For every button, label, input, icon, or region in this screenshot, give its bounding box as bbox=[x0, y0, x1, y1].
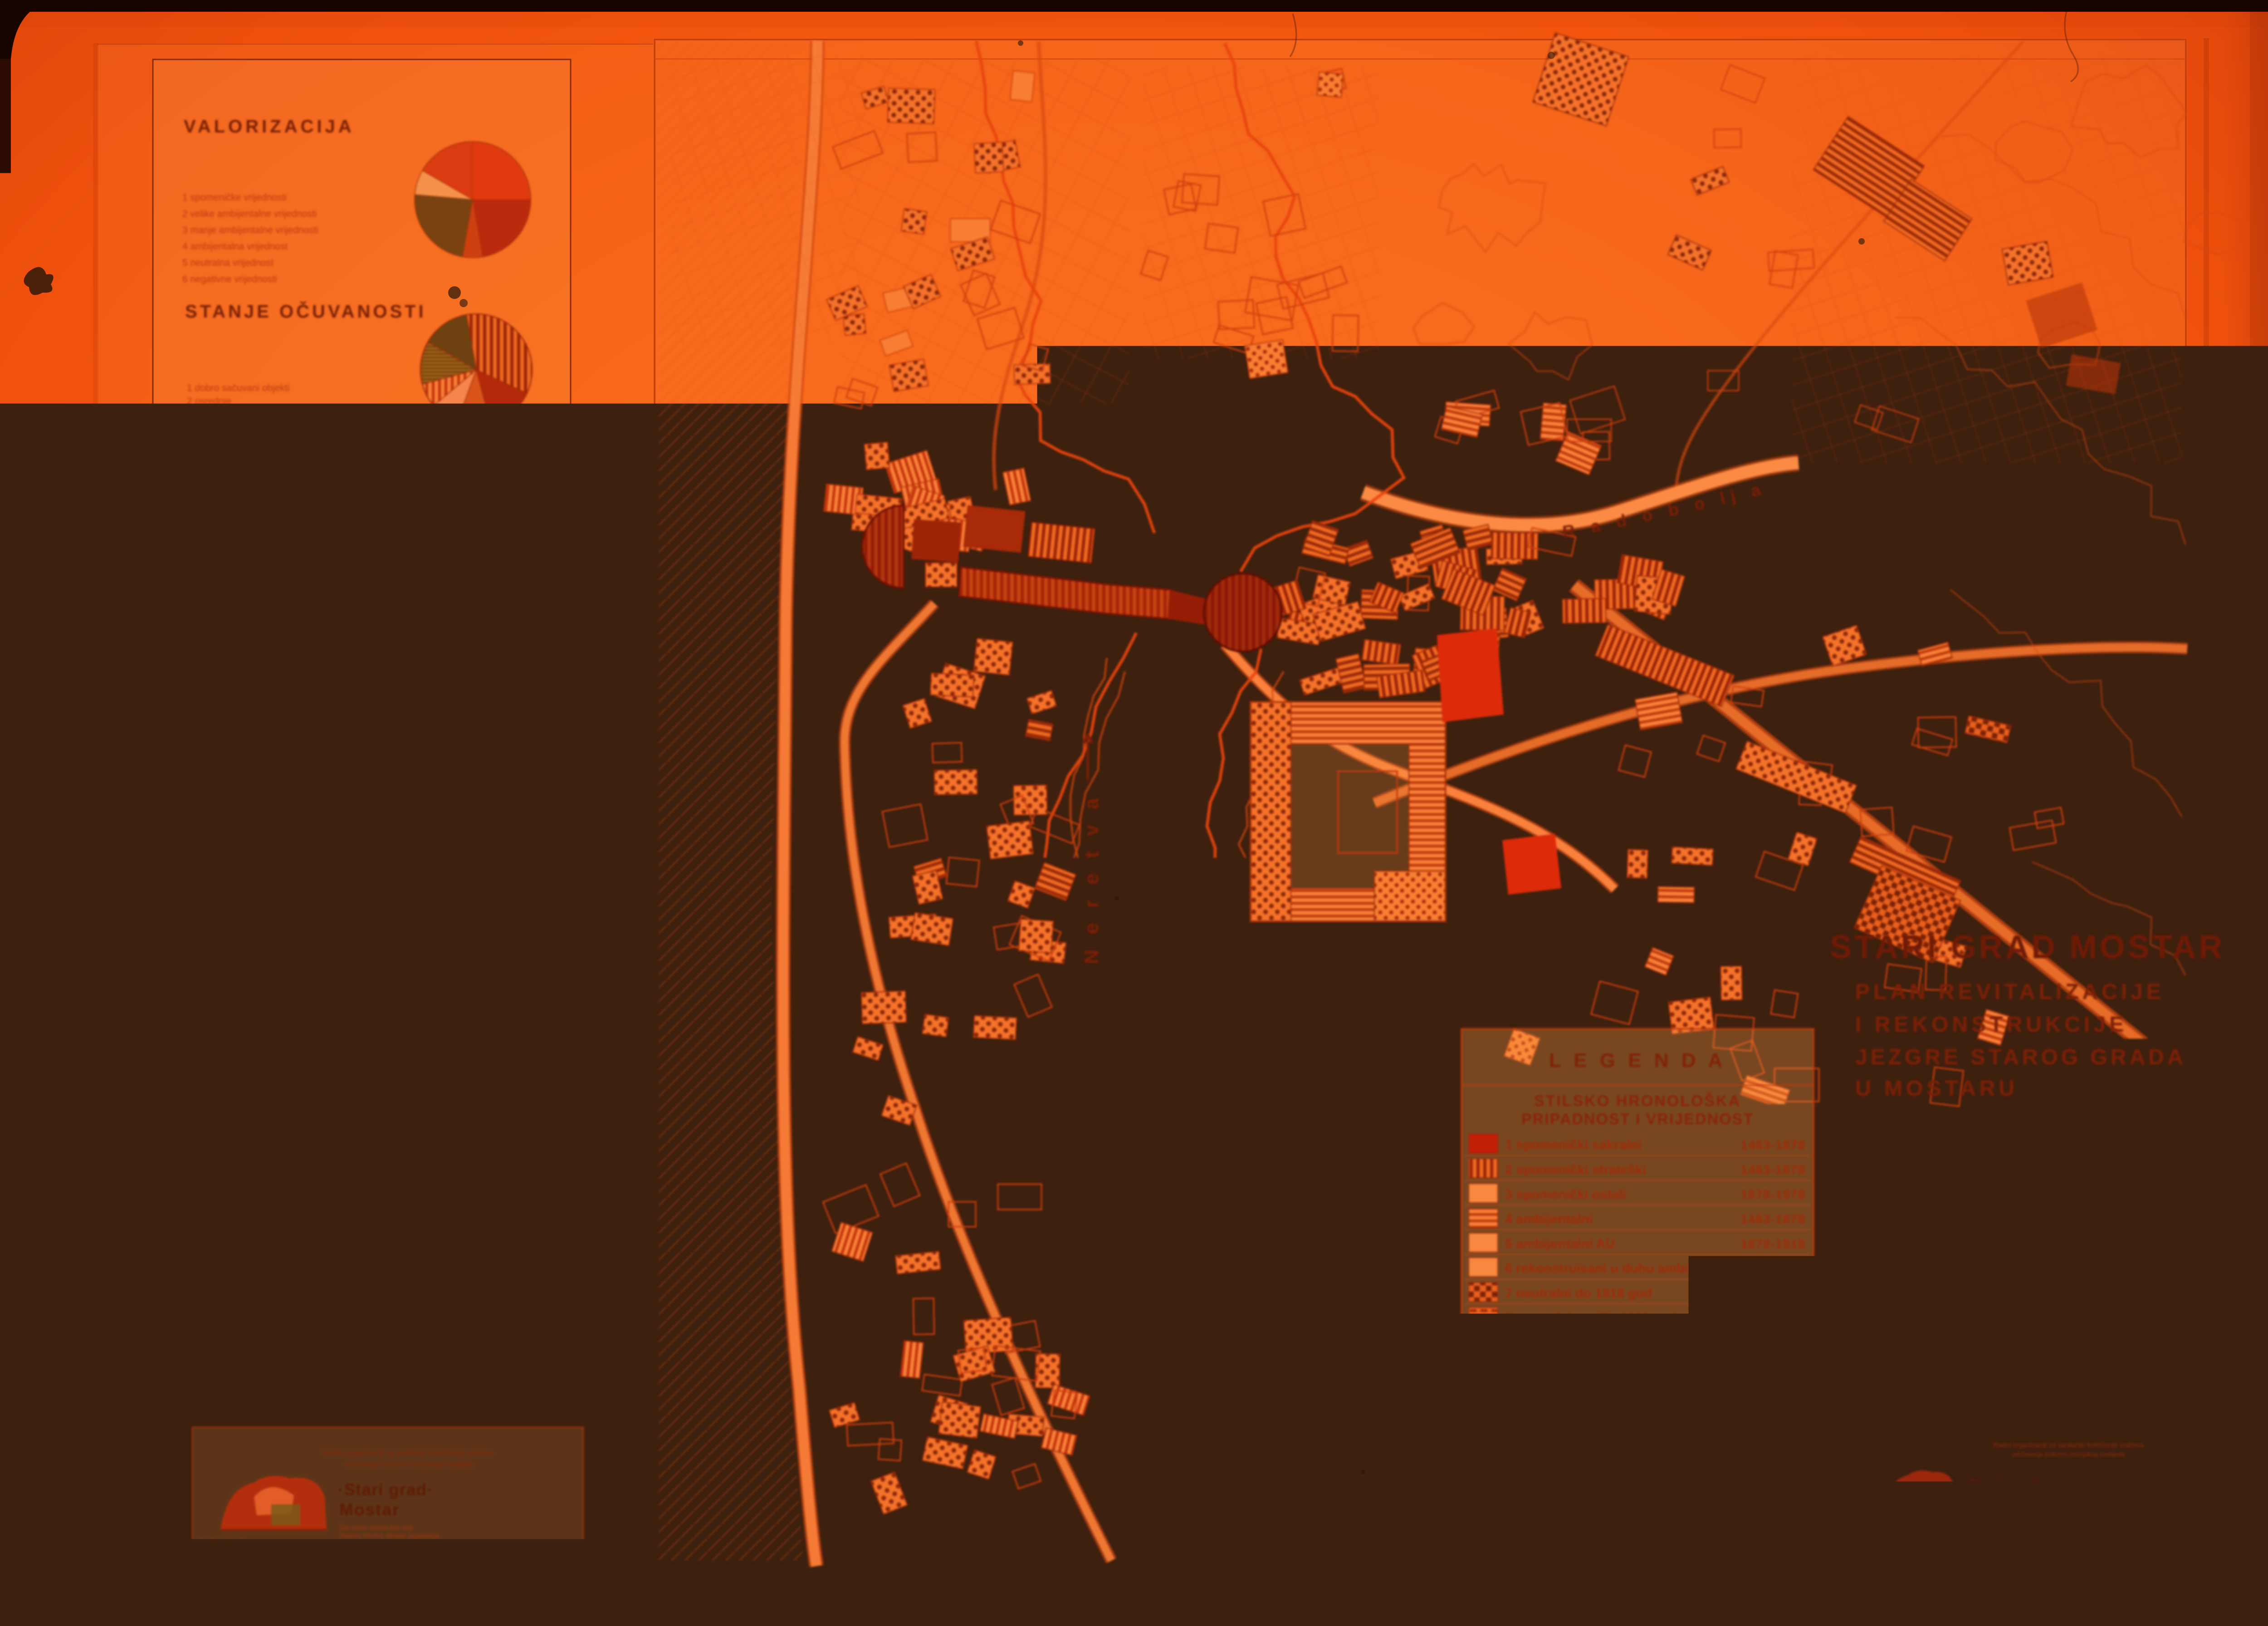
svg-text:STARI GRAD MOSTAR: STARI GRAD MOSTAR bbox=[1830, 929, 2225, 965]
svg-text:5 ambijentalni AU 1878-: 5 ambijentalni AU 1878-1918 bbox=[188, 875, 305, 885]
svg-text:Kako organizaciju za upravljan: Kako organizaciju za upravljanje, korišć… bbox=[191, 715, 557, 723]
svg-text:7 AB skelet sa ispunom od: 7 AB skelet sa ispunom od kamena bbox=[188, 1107, 330, 1117]
svg-text:2 spomenički strateški 1463-1: 2 spomenički strateški 1463-1878 bbox=[188, 840, 323, 850]
svg-text:Mostar: Mostar bbox=[339, 1500, 400, 1519]
svg-text:12 prazan plac: 12 prazan plac bbox=[1505, 1410, 1596, 1425]
svg-text:STILSKO HRONOLOŠKA: STILSKO HRONOLOŠKA bbox=[1534, 1092, 1741, 1110]
svg-text:INVESTITOR: INVESTITOR bbox=[1878, 1212, 1953, 1225]
svg-text:ALIĆ SULEJMAN dipl ing: ALIĆ SULEJMAN dipl ing bbox=[1983, 1418, 2065, 1426]
svg-text:LOKALITET: LOKALITET bbox=[1878, 1254, 1948, 1268]
svg-text:KRILIĆ ZIJAD dipl ing: KRILIĆ ZIJAD dipl ing bbox=[1983, 1347, 2049, 1355]
svg-text:9 AB: 9 AB bbox=[193, 1288, 212, 1298]
svg-text:·Stari grad·: ·Stari grad· bbox=[1964, 1476, 2044, 1492]
svg-text:4 trošno: 4 trošno bbox=[187, 422, 221, 433]
svg-text:Žiro račun 10600-601: Žiro račun 10600-601-433 bbox=[339, 1524, 413, 1531]
svg-text:12 prazan plac: 12 prazan plac bbox=[188, 958, 248, 968]
svg-text:SIZ ZA PROSTORNO: SIZ ZA PROSTORNO bbox=[1983, 1213, 2058, 1221]
svg-text:8 neutralni poslije 1918: 8 neutralni poslije 1918 bbox=[188, 911, 282, 921]
svg-text:10 metalno: 10 metalno bbox=[193, 1302, 238, 1312]
svg-text:KROV I POKROV: KROV I POKROV bbox=[188, 466, 370, 486]
svg-text:PRIPADNOST I VRIJEDNOST: PRIPADNOST I VRIJEDNOST bbox=[1521, 1111, 1754, 1128]
svg-text:1 dobro sačuvani objekti: 1 dobro sačuvani objekti bbox=[187, 383, 289, 393]
svg-text:VALORIZACIJA: VALORIZACIJA bbox=[184, 117, 355, 137]
svg-text:KARTA 1:500: KARTA 1:500 bbox=[2027, 1129, 2181, 1152]
svg-text:Mostar: Mostar bbox=[1965, 1494, 2017, 1509]
svg-text:2 crijep: 2 crijep bbox=[191, 534, 220, 544]
svg-text:NASLJEĐA ANALIZA: NASLJEĐA ANALIZA bbox=[1983, 1300, 2048, 1308]
svg-text:3 zamijeniti kamen materijal: 3 zamijeniti kamen materijal bbox=[188, 1050, 300, 1060]
svg-text:8 dijelom srušen: 8 dijelom srušen bbox=[191, 618, 257, 628]
svg-text:ARHITEKTONSKI ZAVOD: ARHITEKTONSKI ZAVOD bbox=[1983, 1283, 2063, 1290]
svg-text:Kako organizaciju za upravljan: Kako organizaciju za upravljanje, korišć… bbox=[195, 1377, 535, 1385]
svg-text:1878-1978: 1878-1978 bbox=[1740, 1187, 1805, 1201]
svg-text:10 ruševine ambijentalnih o: 10 ruševine ambijentalnih objekata bbox=[188, 934, 328, 944]
svg-text:2 zamijeniti kamen žbukom: 2 zamijeniti kamen žbukom bbox=[188, 1036, 298, 1046]
svg-text:11 ruševine ne postoje istor p: 11 ruševine ne postoje istor podaci bbox=[1505, 1385, 1724, 1400]
svg-text:5 ravni krov: 5 ravni krov bbox=[191, 576, 237, 586]
svg-text:STILSKO HRONOLOŠKA: STILSKO HRONOLOŠKA bbox=[195, 780, 432, 800]
svg-text:MEĐU-SPRAT, STEPENIŠTE: MEĐU-SPRAT, STEPENIŠTE bbox=[206, 1141, 465, 1161]
svg-text:2 spomenički strateški: 2 spomenički strateški bbox=[1505, 1163, 1646, 1177]
svg-text:SARADNICI: SARADNICI bbox=[1878, 1344, 1942, 1357]
svg-text:5 neutralna vrijednost: 5 neutralna vrijednost bbox=[182, 258, 274, 268]
svg-text:ČERIĆ ELŠA: ČERIĆ ELŠA bbox=[1983, 1364, 2024, 1372]
svg-text:OVLAŠĆENI: OVLAŠĆENI bbox=[1878, 1319, 1945, 1332]
svg-text:1 spomenički sakralni 1463-1: 1 spomenički sakralni 1463-1878 bbox=[188, 828, 321, 838]
svg-text:6 rekonstruisani u duhu ambije: 6 rekonstruisani u duhu ambijenta bbox=[1505, 1262, 1720, 1276]
svg-text:8 neutralni poslije 1918 god: 8 neutralni poslije 1918 god bbox=[1505, 1311, 1677, 1326]
svg-text:SEPTEMBAR 1978: SEPTEMBAR 1978 bbox=[2114, 1513, 2210, 1523]
svg-text:9 recentni objekti: 9 recentni objekti bbox=[1505, 1336, 1613, 1350]
svg-text:3 spomenički ostali 1878-: 3 spomenički ostali 1878-1978 bbox=[188, 852, 311, 862]
svg-text:6 kupa kanalica: 6 kupa kanalica bbox=[191, 590, 254, 600]
svg-text:7 neutralni do 1918: 7 neutralni do 1918 bbox=[188, 899, 266, 909]
svg-text:1 pozitivne obrade kamen: 1 pozitivne obrade kamen bbox=[188, 1022, 292, 1032]
svg-text:Neretva: Neretva bbox=[1080, 783, 1103, 964]
svg-text:održavanje kulturno-istorijsko: održavanje kulturno-istorijskog naslijeđ… bbox=[344, 1460, 473, 1468]
svg-text:1 spomenički sakralni: 1 spomenički sakralni bbox=[1505, 1138, 1642, 1152]
svg-text:11 ruševine ne postoje isto: 11 ruševine ne postoje istor podaci bbox=[188, 946, 328, 956]
svg-text:Jugoslavija: Jugoslavija bbox=[1965, 1513, 1997, 1520]
svg-text:ulica Prve maja 18: ulica Prve maja 18 bbox=[196, 1537, 244, 1544]
svg-text:STARI GRAD: STARI GRAD bbox=[1983, 1255, 2027, 1263]
svg-text:PROJEKTANT-: PROJEKTANT- bbox=[1878, 1332, 1959, 1344]
svg-text:održavanje kulturno-istorijsko: održavanje kulturno-istorijskog naslijeđ… bbox=[2012, 1450, 2125, 1458]
svg-text:4 AB serklaži i drvene gre: 4 AB serklaži i drvene grede bbox=[193, 1223, 306, 1233]
svg-text:6 negativne vrijednosti: 6 negativne vrijednosti bbox=[182, 274, 277, 284]
svg-text:KULTURNO ISTOR: KULTURNO ISTOR bbox=[1983, 1291, 2043, 1299]
svg-text:3 manje ambijentalne vrijedn: 3 manje ambijentalne vrijednosti bbox=[182, 225, 318, 235]
svg-text:9 recentni objekti: 9 recentni objekti bbox=[188, 922, 257, 932]
svg-text:ZIDOVI I FASADE: ZIDOVI I FASADE bbox=[200, 974, 375, 993]
svg-text:JEZGRE STAROG GRADA: JEZGRE STAROG GRADA bbox=[1855, 1045, 2186, 1069]
svg-text:2 drvena i svodovi: 2 drvena i svodovi bbox=[193, 1196, 266, 1206]
svg-text:PLAN REVITALIZACIJE: PLAN REVITALIZACIJE bbox=[1855, 980, 2165, 1004]
svg-text:6 betonski zidovi: 6 betonski zidovi bbox=[188, 1092, 255, 1102]
svg-text:Radni organizaciji za sanita: Radni organizaciji za sanitarijo korišče… bbox=[323, 1449, 494, 1457]
svg-text:11 kombinovano: 11 kombinovano bbox=[193, 1315, 259, 1325]
svg-text:8 drvene: 8 drvene bbox=[193, 1275, 228, 1285]
svg-text:2 osrednje: 2 osrednje bbox=[187, 396, 231, 406]
svg-text:Radni organizaciji za sanita: Radni organizaciji za sanitarijo korišče… bbox=[1993, 1441, 2144, 1449]
svg-text:UREĐENJE: UREĐENJE bbox=[1983, 1223, 2025, 1231]
svg-text:PROJEKAT: PROJEKAT bbox=[1878, 1281, 1945, 1295]
svg-text:1 svod: 1 svod bbox=[193, 1183, 220, 1193]
svg-text:5 AB ploča: 5 AB ploča bbox=[193, 1236, 237, 1246]
svg-text:I REKONSTRUKCIJE: I REKONSTRUKCIJE bbox=[1855, 1013, 2127, 1037]
svg-text:1 spomeničke vrijednosti: 1 spomeničke vrijednosti bbox=[182, 192, 287, 203]
svg-text:10 ruševine ambijentalni objek: 10 ruševine ambijentalni objekata bbox=[1505, 1361, 1715, 1375]
svg-text:STILSKO HRONOLOŠKA PRIPA-: STILSKO HRONOLOŠKA PRIPA- bbox=[1832, 1161, 2134, 1182]
svg-text:1878-1918: 1878-1918 bbox=[1740, 1237, 1805, 1251]
svg-text:JUKIĆ ANKICA i drugi: JUKIĆ ANKICA i drugi bbox=[1983, 1373, 2050, 1381]
svg-text:LAKIŠIĆ ALIJA: LAKIŠIĆ ALIJA bbox=[1983, 1356, 2029, 1363]
svg-text:3 drvena građa: 3 drvena građa bbox=[193, 1210, 254, 1219]
svg-text:DNOST I VRIJEDNOST: DNOST I VRIJEDNOST bbox=[1869, 1182, 2088, 1202]
svg-text:1 dobar krov: 1 dobar krov bbox=[191, 519, 241, 529]
svg-text:DIREKTOR: DIREKTOR bbox=[1878, 1411, 1943, 1425]
svg-text:8 AB skelet ispuna opeka b: 8 AB skelet ispuna opeka blok bbox=[188, 1121, 310, 1131]
svg-text:7 improvizirano ploče: 7 improvizirano ploče bbox=[191, 604, 276, 614]
svg-text:ANALIZE: ANALIZE bbox=[1832, 1122, 2001, 1157]
svg-text:4 ambijentalna vrijednost: 4 ambijentalna vrijednost bbox=[182, 241, 288, 252]
svg-text:5 ćerpić i ostalo: 5 ćerpić i ostalo bbox=[188, 1078, 251, 1088]
svg-text:1463-1878: 1463-1878 bbox=[1740, 1212, 1805, 1226]
svg-text:2 velike ambijentalne vrijed: 2 velike ambijentalne vrijednosti bbox=[182, 209, 317, 219]
svg-text:·Stari grad·: ·Stari grad· bbox=[338, 1480, 433, 1499]
svg-text:STANJE OČUVANOSTI: STANJE OČUVANOSTI bbox=[185, 301, 426, 322]
svg-text:7 neutralni do 1918 god: 7 neutralni do 1918 god bbox=[1505, 1286, 1652, 1301]
svg-text:7 kamena: 7 kamena bbox=[193, 1262, 233, 1272]
svg-text:6 čelična: 6 čelična bbox=[193, 1249, 229, 1259]
svg-text:1463-1878: 1463-1878 bbox=[1740, 1163, 1805, 1177]
svg-text:9 zamijeniti pokrov: 9 zamijeniti pokrov bbox=[191, 632, 266, 642]
svg-text:Telefoni 78-416, Mostar Jugo: Telefoni 78-416, Mostar Jugoslavija bbox=[339, 1532, 439, 1539]
svg-text:4 ambijentalni: 4 ambijentalni bbox=[1505, 1212, 1593, 1227]
svg-text:5 ruševno: 5 ruševno bbox=[187, 436, 229, 446]
svg-text:6 ruševine, neupotrebljivo: 6 ruševine, neupotrebljivo bbox=[187, 449, 295, 459]
svg-text:3 spomenički ostali: 3 spomenički ostali bbox=[1505, 1187, 1627, 1202]
svg-text:U MOSTARU: U MOSTARU bbox=[1855, 1077, 2018, 1101]
svg-text:6 rekonstruisani u duhu amb: 6 rekonstruisani u duhu ambijenta bbox=[188, 887, 325, 897]
svg-text:L E G E N D A: L E G E N D A bbox=[1549, 1049, 1726, 1072]
svg-text:PRIPADNOST I VRIJEDNOST: PRIPADNOST I VRIJEDNOST bbox=[185, 802, 453, 821]
svg-text:4 opeka: 4 opeka bbox=[188, 1064, 221, 1074]
svg-text:4 ambijentalni 146: 4 ambijentalni 1463-1878 bbox=[188, 863, 290, 873]
svg-text:3 ćeramida: 3 ćeramida bbox=[191, 548, 236, 558]
svg-text:4 salonit: 4 salonit bbox=[191, 562, 225, 572]
svg-text:1463-1878: 1463-1878 bbox=[1740, 1138, 1805, 1152]
svg-text:STANKOVIĆ MIODRAG: STANKOVIĆ MIODRAG bbox=[1983, 1338, 2056, 1346]
svg-text:MOSTAR: MOSTAR bbox=[1983, 1264, 2014, 1272]
svg-text:DŽELJA DŽEMAL dipl ing arh: DŽELJA DŽEMAL dipl ing arh bbox=[1983, 1321, 2072, 1329]
svg-text:3 konzervacija: 3 konzervacija bbox=[187, 409, 248, 420]
svg-text:5 ambijentalni AU: 5 ambijentalni AU bbox=[1505, 1237, 1615, 1251]
